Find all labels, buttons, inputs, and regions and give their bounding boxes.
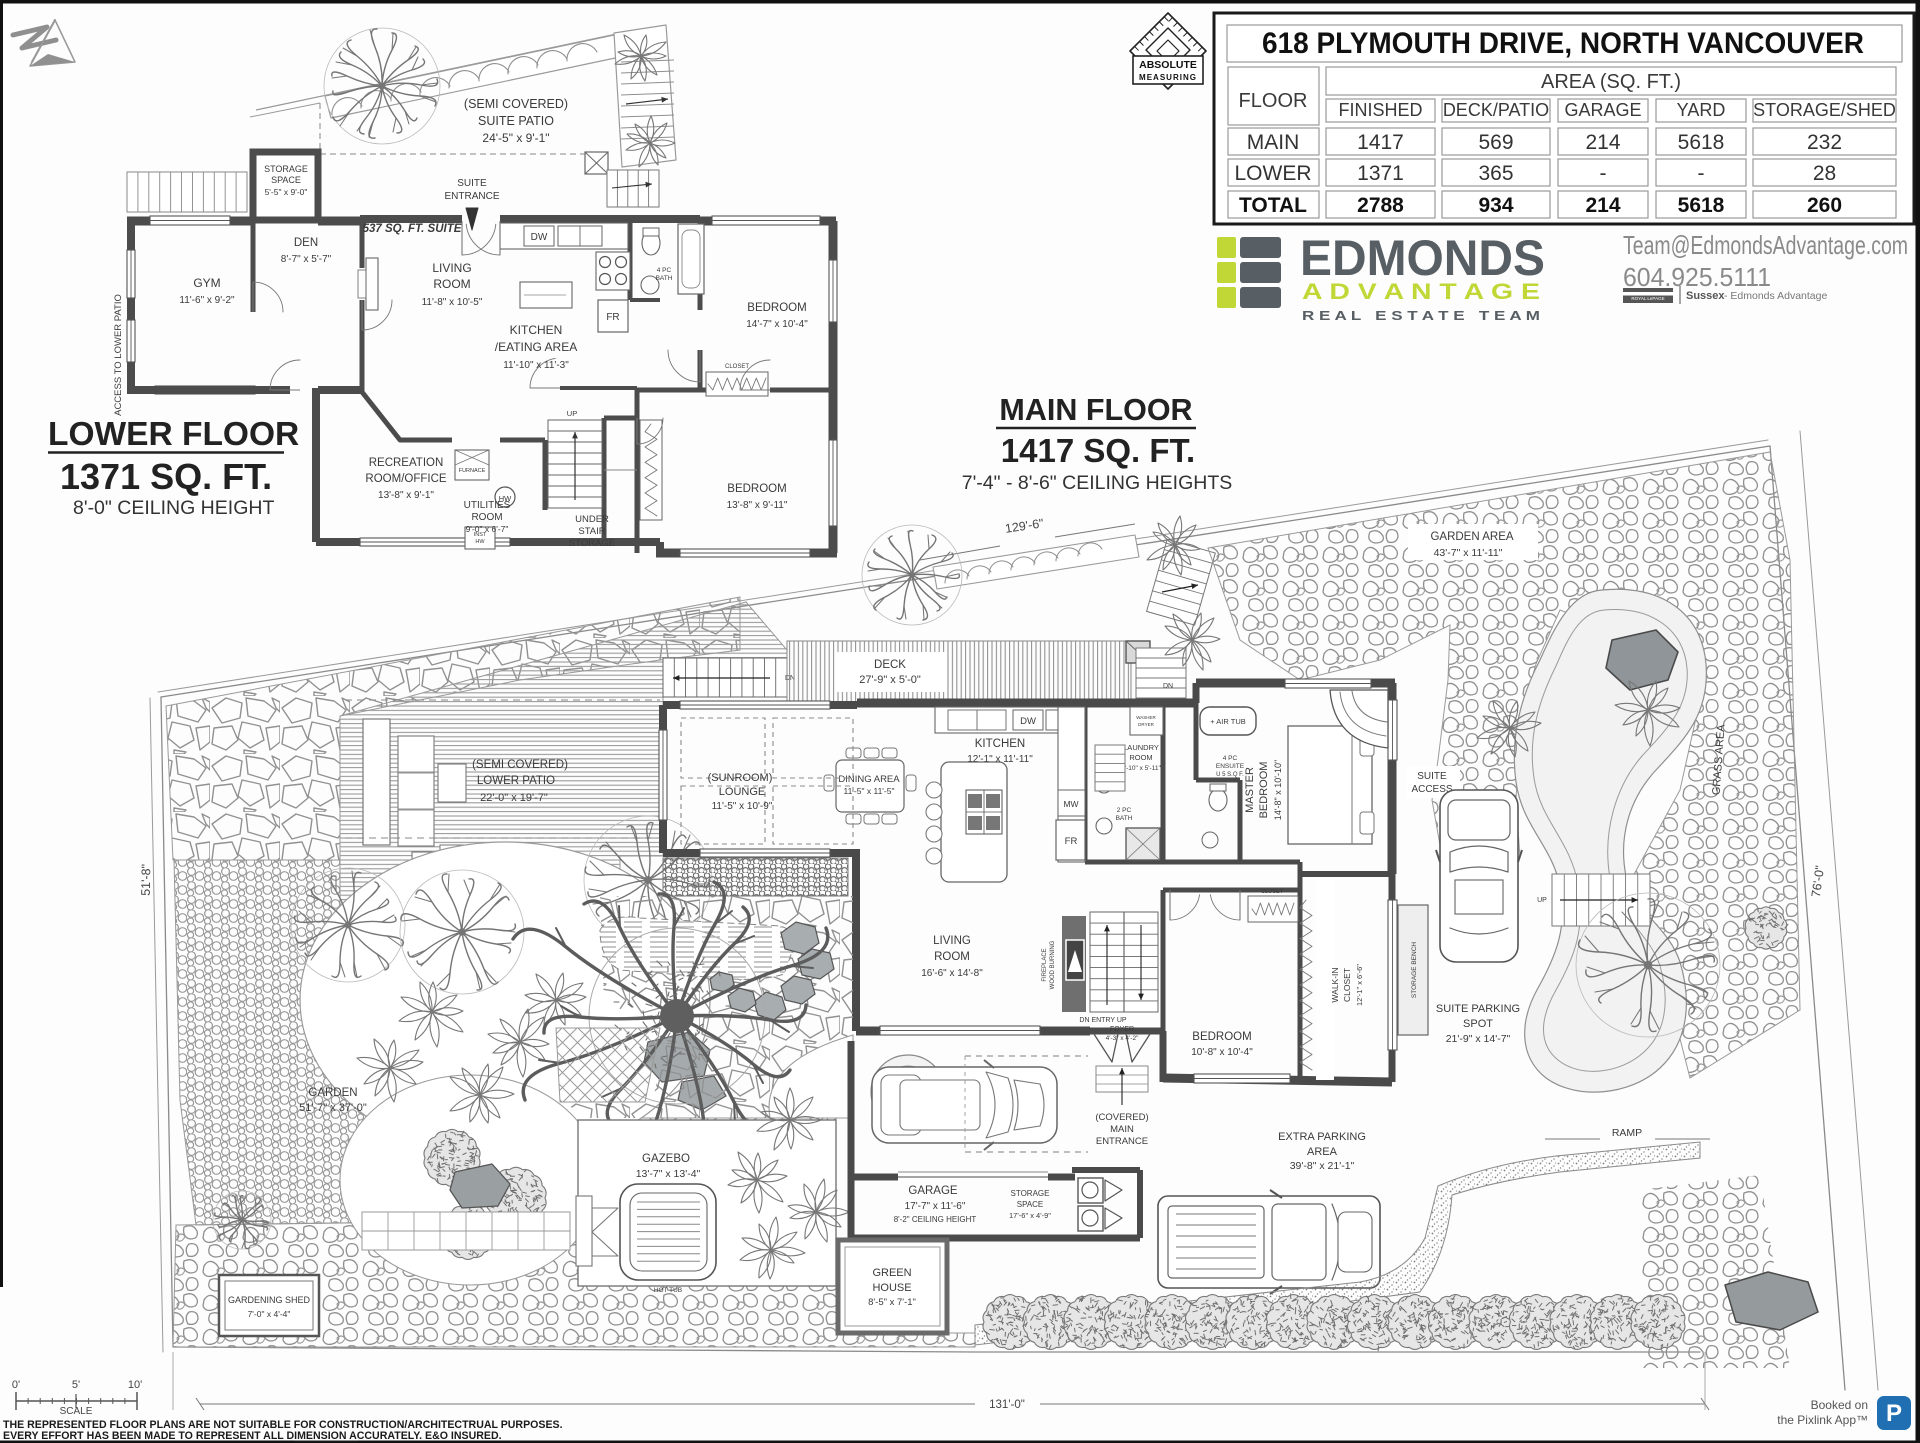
svg-text:11'-6" x 9'-2": 11'-6" x 9'-2" xyxy=(179,295,235,306)
svg-text:BATH: BATH xyxy=(656,275,673,282)
svg-text:7'-0" x 4'-4": 7'-0" x 4'-4" xyxy=(248,1309,291,1319)
svg-text:4 PC: 4 PC xyxy=(1223,755,1238,762)
svg-text:BEDROOM: BEDROOM xyxy=(1192,1031,1251,1043)
svg-text:UNDER: UNDER xyxy=(575,514,609,525)
svg-text:GYM: GYM xyxy=(193,276,220,290)
svg-text:10': 10' xyxy=(128,1379,142,1391)
svg-text:the Pixlink App™: the Pixlink App™ xyxy=(1777,1413,1868,1427)
svg-text:YARD: YARD xyxy=(1677,100,1726,120)
svg-text:BEDROOM: BEDROOM xyxy=(747,302,806,314)
svg-text:365: 365 xyxy=(1478,162,1513,185)
svg-text:9'-0" x 6'-7": 9'-0" x 6'-7" xyxy=(466,524,509,534)
svg-text:ROYAL LePAGE: ROYAL LePAGE xyxy=(1631,296,1664,301)
svg-text:FR: FR xyxy=(1065,836,1078,847)
svg-text:WOOD BURNING: WOOD BURNING xyxy=(1050,940,1056,989)
svg-text:UP: UP xyxy=(567,409,577,418)
svg-text:LAUNDRY: LAUNDRY xyxy=(1123,743,1159,752)
svg-text:STORAGE: STORAGE xyxy=(569,538,615,549)
svg-text:FIREPLACE: FIREPLACE xyxy=(1042,948,1048,981)
svg-text:ENSUITE: ENSUITE xyxy=(1216,763,1245,770)
svg-text:537 SQ. FT. SUITE: 537 SQ. FT. SUITE xyxy=(363,223,462,235)
svg-text:22'-0" x 19'-7": 22'-0" x 19'-7" xyxy=(480,792,548,804)
svg-text:618 PLYMOUTH DRIVE, NORTH VANC: 618 PLYMOUTH DRIVE, NORTH VANCOUVER xyxy=(1262,27,1864,60)
svg-text:MW: MW xyxy=(1063,799,1078,809)
svg-text:DN: DN xyxy=(1163,683,1173,690)
svg-text:BEDROOM: BEDROOM xyxy=(1258,762,1270,819)
svg-text:ENTRANCE: ENTRANCE xyxy=(1096,1136,1148,1147)
svg-text:FR: FR xyxy=(606,312,619,323)
svg-text:UP: UP xyxy=(1537,897,1547,904)
svg-text:MAIN FLOOR: MAIN FLOOR xyxy=(999,393,1192,427)
svg-text:SPACE: SPACE xyxy=(271,175,301,185)
svg-text:AREA: AREA xyxy=(1307,1146,1338,1158)
svg-text:5'-5" x 9'-0": 5'-5" x 9'-0" xyxy=(265,187,308,197)
svg-text:12'-1" x 11'-11": 12'-1" x 11'-11" xyxy=(967,754,1033,765)
svg-text:FINISHED: FINISHED xyxy=(1338,100,1422,120)
svg-text:5618: 5618 xyxy=(1678,194,1725,217)
svg-text:LIVING: LIVING xyxy=(432,261,471,275)
svg-text:-: - xyxy=(1698,162,1705,185)
svg-text:STORAGE/SHED: STORAGE/SHED xyxy=(1753,100,1896,120)
svg-text:SUITE PATIO: SUITE PATIO xyxy=(478,114,554,128)
svg-text:- Edmonds Advantage: - Edmonds Advantage xyxy=(1724,290,1827,302)
svg-text:GARDENING SHED: GARDENING SHED xyxy=(228,1295,311,1305)
svg-text:8'-0" CEILING HEIGHT: 8'-0" CEILING HEIGHT xyxy=(73,497,274,519)
svg-text:CLOSET: CLOSET xyxy=(1342,968,1352,1002)
svg-text:8'-2" CEILING HEIGHT: 8'-2" CEILING HEIGHT xyxy=(894,1215,977,1224)
svg-text:ROOM: ROOM xyxy=(1129,753,1152,762)
svg-text:SPACE: SPACE xyxy=(1017,1200,1044,1209)
svg-text:Team@EdmondsAdvantage.com: Team@EdmondsAdvantage.com xyxy=(1623,230,1908,260)
svg-text:MASTER: MASTER xyxy=(1244,767,1256,813)
svg-text:HW: HW xyxy=(475,539,485,545)
svg-text:RECREATION: RECREATION xyxy=(369,457,444,469)
svg-text:DW: DW xyxy=(531,232,548,243)
svg-text:1417: 1417 xyxy=(1357,131,1404,154)
svg-text:STORAGE: STORAGE xyxy=(264,164,308,174)
svg-text:(COVERED): (COVERED) xyxy=(1095,1112,1148,1123)
svg-text:MEASURING: MEASURING xyxy=(1139,73,1197,82)
svg-text:11'-8" x 10'-5": 11'-8" x 10'-5" xyxy=(422,297,483,308)
svg-text:GARDEN AREA: GARDEN AREA xyxy=(1430,531,1513,543)
svg-text:27'-9" x 5'-0": 27'-9" x 5'-0" xyxy=(859,674,921,686)
svg-text:569: 569 xyxy=(1478,131,1513,154)
svg-text:16'-6" x 14'-8": 16'-6" x 14'-8" xyxy=(921,968,983,979)
svg-text:17'-7" x 11'-6": 17'-7" x 11'-6" xyxy=(905,1201,966,1212)
svg-text:CLOSET: CLOSET xyxy=(725,364,749,370)
svg-text:(SUNROOM): (SUNROOM) xyxy=(708,772,773,784)
svg-text:LOUNGE: LOUNGE xyxy=(719,786,765,798)
svg-text:1417 SQ. FT.: 1417 SQ. FT. xyxy=(1001,432,1195,469)
svg-text:1371: 1371 xyxy=(1357,162,1404,185)
svg-text:GARAGE: GARAGE xyxy=(908,1185,958,1197)
svg-text:11'-5" x 10'-9": 11'-5" x 10'-9" xyxy=(712,801,773,812)
svg-text:12'-1" x 6'-6": 12'-1" x 6'-6" xyxy=(1355,964,1364,1006)
svg-text:AREA (SQ. FT.): AREA (SQ. FT.) xyxy=(1541,71,1681,93)
svg-text:604.925.5111: 604.925.5111 xyxy=(1623,262,1771,292)
svg-text:/EATING AREA: /EATING AREA xyxy=(495,340,577,354)
svg-text:DECK/PATIO: DECK/PATIO xyxy=(1443,100,1549,120)
svg-text:MAIN: MAIN xyxy=(1247,131,1300,154)
svg-text:SUITE PARKING: SUITE PARKING xyxy=(1436,1003,1520,1015)
svg-text:-: - xyxy=(1600,162,1607,185)
svg-text:Booked on: Booked on xyxy=(1811,1398,1868,1412)
svg-text:11'-10" x 11'-3": 11'-10" x 11'-3" xyxy=(503,360,569,371)
svg-text:LIVING: LIVING xyxy=(933,935,971,947)
svg-text:SUITE: SUITE xyxy=(1417,771,1447,782)
svg-text:5618: 5618 xyxy=(1678,131,1725,154)
svg-text:SPOT: SPOT xyxy=(1463,1018,1493,1030)
svg-text:8'-5" x 7'-1": 8'-5" x 7'-1" xyxy=(868,1297,916,1308)
svg-text:24'-5" x 9'-1": 24'-5" x 9'-1" xyxy=(482,131,549,145)
svg-text:RAMP: RAMP xyxy=(1612,1127,1642,1139)
svg-text:EDMONDS: EDMONDS xyxy=(1300,230,1545,286)
svg-text:0': 0' xyxy=(12,1379,20,1391)
svg-text:A D V A N T A G E: A D V A N T A G E xyxy=(1302,279,1540,304)
svg-text:FURNACE: FURNACE xyxy=(459,468,486,474)
svg-text:1371 SQ. FT.: 1371 SQ. FT. xyxy=(60,456,272,497)
svg-text:13'-8" x 9'-1": 13'-8" x 9'-1" xyxy=(378,490,434,501)
svg-text:5'-10" x 5'-11": 5'-10" x 5'-11" xyxy=(1121,765,1161,772)
svg-text:KITCHEN: KITCHEN xyxy=(975,738,1025,750)
svg-text:EVERY EFFORT HAS BEEN MADE TO: EVERY EFFORT HAS BEEN MADE TO REPRESENT … xyxy=(3,1430,502,1442)
svg-text:2788: 2788 xyxy=(1357,194,1404,217)
svg-text:51'-7" x 37'-0": 51'-7" x 37'-0" xyxy=(299,1102,367,1114)
svg-text:51'-8": 51'-8" xyxy=(139,864,154,896)
svg-text:DW: DW xyxy=(1020,716,1036,727)
svg-text:DECK: DECK xyxy=(874,659,906,671)
svg-text:WASHER: WASHER xyxy=(1136,715,1156,720)
svg-text:MAIN: MAIN xyxy=(1110,1124,1134,1135)
svg-text:4'-3" x 4'-2": 4'-3" x 4'-2" xyxy=(1106,1035,1139,1042)
svg-text:10'-8" x 10'-4": 10'-8" x 10'-4" xyxy=(1191,1047,1253,1058)
svg-text:STAIR: STAIR xyxy=(578,526,605,537)
svg-text:260: 260 xyxy=(1807,194,1842,217)
svg-text:TOTAL: TOTAL xyxy=(1239,194,1307,217)
svg-text:GARAGE: GARAGE xyxy=(1564,100,1641,120)
svg-text:+ AIR TUB: + AIR TUB xyxy=(1210,717,1246,726)
svg-text:DINING AREA: DINING AREA xyxy=(838,774,900,785)
svg-text:Sussex: Sussex xyxy=(1686,290,1725,302)
svg-text:(SEMI COVERED): (SEMI COVERED) xyxy=(472,759,568,771)
svg-text:ROOM/OFFICE: ROOM/OFFICE xyxy=(365,473,446,485)
svg-text:GAZEBO: GAZEBO xyxy=(642,1153,690,1165)
svg-text:BATH: BATH xyxy=(1116,815,1133,822)
svg-text:214: 214 xyxy=(1585,131,1620,154)
svg-text:232: 232 xyxy=(1807,131,1842,154)
svg-text:GREEN: GREEN xyxy=(872,1267,911,1279)
svg-text:2 PC: 2 PC xyxy=(1117,807,1132,814)
svg-text:ROOM: ROOM xyxy=(934,951,970,963)
svg-text:HOT TUB: HOT TUB xyxy=(654,1287,682,1294)
svg-text:21'-9" x 14'-7": 21'-9" x 14'-7" xyxy=(1446,1033,1511,1045)
svg-text:HOUSE: HOUSE xyxy=(872,1282,911,1294)
svg-text:UTILITIES: UTILITIES xyxy=(464,500,511,511)
svg-text:LOWER: LOWER xyxy=(1234,162,1311,185)
svg-text:SCALE: SCALE xyxy=(60,1406,93,1417)
svg-text:DN ENTRY UP: DN ENTRY UP xyxy=(1079,1017,1127,1024)
svg-text:DEN: DEN xyxy=(294,237,318,249)
svg-text:BEDROOM: BEDROOM xyxy=(727,483,786,495)
svg-text:ENTRANCE: ENTRANCE xyxy=(444,191,499,202)
svg-text:FLOOR: FLOOR xyxy=(1239,90,1308,112)
svg-text:13'-8" x 9'-11": 13'-8" x 9'-11" xyxy=(727,500,788,511)
svg-text:11'-5" x 11'-5": 11'-5" x 11'-5" xyxy=(843,786,894,796)
svg-text:934: 934 xyxy=(1478,194,1513,217)
svg-text:131'-0": 131'-0" xyxy=(989,1399,1025,1411)
svg-text:CLOSET: CLOSET xyxy=(1261,889,1284,895)
svg-text:ROOM: ROOM xyxy=(433,277,470,291)
svg-text:13'-7" x 13'-4": 13'-7" x 13'-4" xyxy=(636,1168,701,1180)
svg-text:28: 28 xyxy=(1813,162,1836,185)
svg-text:(SEMI COVERED): (SEMI COVERED) xyxy=(464,97,568,111)
svg-text:LOWER FLOOR: LOWER FLOOR xyxy=(48,416,299,453)
svg-text:14'-7" x 10'-4": 14'-7" x 10'-4" xyxy=(746,319,808,330)
svg-text:ROOM: ROOM xyxy=(471,512,502,523)
svg-text:43'-7" x 11'-11": 43'-7" x 11'-11" xyxy=(1434,547,1503,559)
svg-text:4 PC: 4 PC xyxy=(657,267,672,274)
svg-text:DRYER: DRYER xyxy=(1138,722,1154,727)
svg-text:SUITE: SUITE xyxy=(457,178,487,189)
svg-text:8'-7" x 5'-7": 8'-7" x 5'-7" xyxy=(281,254,332,265)
svg-text:P: P xyxy=(1886,1400,1902,1427)
svg-text:ABSOLUTE: ABSOLUTE xyxy=(1139,59,1197,71)
svg-text:EXTRA PARKING: EXTRA PARKING xyxy=(1278,1131,1366,1143)
svg-text:ACCESS TO LOWER PATIO: ACCESS TO LOWER PATIO xyxy=(113,294,124,416)
svg-text:7'-4" - 8'-6" CEILING HEIGHTS: 7'-4" - 8'-6" CEILING HEIGHTS xyxy=(962,472,1233,494)
svg-text:STORAGE: STORAGE xyxy=(1011,1189,1050,1198)
svg-text:LOWER PATIO: LOWER PATIO xyxy=(477,775,555,787)
svg-text:STORAGE BENCH: STORAGE BENCH xyxy=(1411,942,1418,999)
svg-text:R E A L E S T A T E T E A: R E A L E S T A T E T E A M xyxy=(1302,308,1540,323)
svg-text:GARDEN: GARDEN xyxy=(308,1087,357,1099)
svg-text:17'-6" x 4'-9": 17'-6" x 4'-9" xyxy=(1009,1211,1051,1220)
svg-text:214: 214 xyxy=(1585,194,1620,217)
svg-text:KITCHEN: KITCHEN xyxy=(510,323,563,337)
svg-text:FOYER: FOYER xyxy=(1110,1026,1134,1033)
svg-text:WALK-IN: WALK-IN xyxy=(1330,967,1340,1002)
svg-text:39'-8" x 21'-1": 39'-8" x 21'-1" xyxy=(1290,1160,1355,1172)
svg-text:14'-8" x 10'-10": 14'-8" x 10'-10" xyxy=(1273,760,1283,820)
svg-text:5': 5' xyxy=(72,1379,80,1391)
svg-text:U 5 S.Q F.: U 5 S.Q F. xyxy=(1216,772,1244,778)
